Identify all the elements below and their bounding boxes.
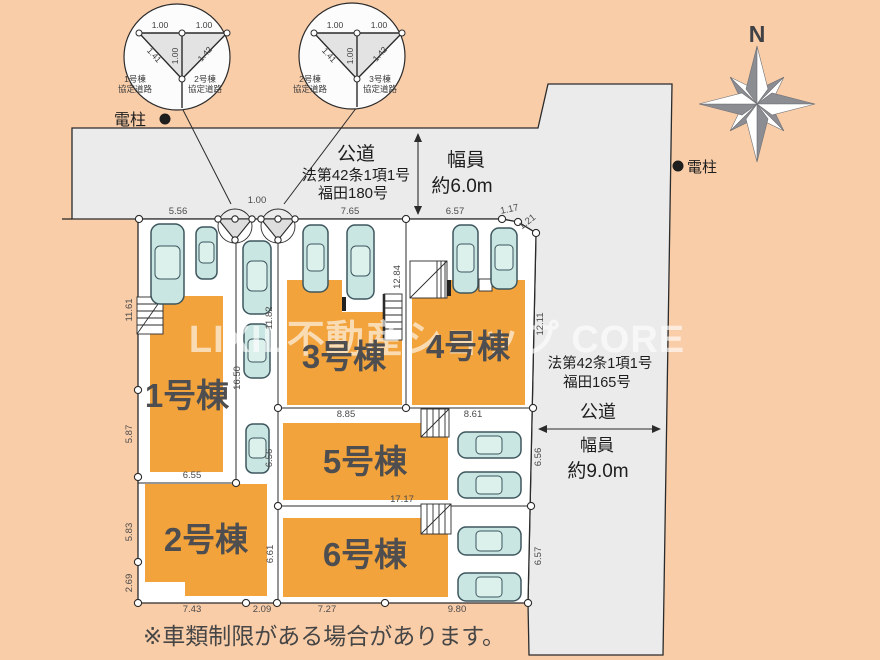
detail2-dim-center: 1.00 xyxy=(345,47,355,64)
right-road-route: 福田165号 xyxy=(563,374,631,391)
detail2-dim-top-left: 1.00 xyxy=(327,20,344,30)
dim-label: 12.84 xyxy=(392,265,403,289)
entry-mark-building3 xyxy=(342,297,346,311)
detail2-label-left-1: 2号棟 xyxy=(299,74,321,84)
dim-label: 11.61 xyxy=(124,298,135,321)
dim-label: 5.83 xyxy=(124,523,135,542)
right-road-name: 公道 xyxy=(580,402,616,422)
detail1-dim-center: 1.00 xyxy=(170,47,180,64)
top-road-law: 法第42条1項1号 xyxy=(302,166,410,184)
utility-pole-dot-left xyxy=(160,114,171,125)
dim-label: 8.61 xyxy=(464,409,483,420)
building-3-label: 3号棟 xyxy=(302,338,387,375)
stairs-parcel6 xyxy=(421,504,451,534)
dim-label: 12.11 xyxy=(535,312,546,335)
utility-pole-label-left: 電柱 xyxy=(114,111,146,129)
building-4-label: 4号棟 xyxy=(426,328,511,365)
dim-label: 6.57 xyxy=(533,547,544,566)
detail1-dim-top-left: 1.00 xyxy=(152,20,169,30)
dim-label: 6.55 xyxy=(183,470,202,481)
dim-label: 17.17 xyxy=(390,494,414,505)
dim-label: 1.00 xyxy=(248,195,267,206)
detail1-label-right-1: 2号棟 xyxy=(194,74,216,84)
building-6-label: 6号棟 xyxy=(323,536,408,573)
footnote: ※車類制限がある場合があります。 xyxy=(143,623,505,649)
stairs-parcel5 xyxy=(421,409,449,437)
dim-label: 6.56 xyxy=(533,448,544,467)
dim-label: 2.09 xyxy=(253,604,272,615)
site-plan-canvas: 1.00 1.00 1.41 1.00 1.42 1号棟 協定道路 2号棟 協定… xyxy=(0,0,880,660)
dim-label: 6.61 xyxy=(265,545,276,564)
right-road-width-value: 約9.0m xyxy=(567,460,628,482)
right-road-law: 法第42条1項1号 xyxy=(548,354,653,372)
dim-label: 7.27 xyxy=(318,604,337,615)
dim-label: 9.80 xyxy=(448,604,467,615)
detail1-label-left-2: 協定道路 xyxy=(118,84,153,94)
compass-north-label: N xyxy=(749,21,766,47)
dim-label: 5.56 xyxy=(169,206,188,217)
dim-label: 7.65 xyxy=(341,206,360,217)
top-road-width-label: 幅員 xyxy=(447,149,485,171)
dim-label: 8.85 xyxy=(337,409,356,420)
building-1-label: 1号棟 xyxy=(145,377,230,414)
dim-label: 6.57 xyxy=(446,206,465,217)
right-road-width-label: 幅員 xyxy=(580,436,614,455)
dim-label: 11.82 xyxy=(264,306,275,329)
detail2-label-right-1: 3号棟 xyxy=(369,74,391,84)
top-road-name: 公道 xyxy=(337,143,375,165)
entry-mark-building4 xyxy=(447,280,451,296)
top-road-width-value: 約6.0m xyxy=(431,175,492,197)
detail2-label-right-2: 協定道路 xyxy=(363,84,398,94)
top-road-route: 福田180号 xyxy=(318,185,388,202)
detail2-label-left-2: 協定道路 xyxy=(293,84,328,94)
utility-pole-label-right: 電柱 xyxy=(687,159,717,176)
building-5-label: 5号棟 xyxy=(323,443,408,480)
dim-label: 2.69 xyxy=(124,574,135,593)
site-plan: 1.00 1.00 1.41 1.00 1.42 1号棟 協定道路 2号棟 協定… xyxy=(0,0,880,660)
detail1-dim-top-right: 1.00 xyxy=(196,20,213,30)
dim-label: 6.56 xyxy=(264,449,275,468)
building-2-label: 2号棟 xyxy=(164,521,249,558)
dim-label: 5.87 xyxy=(124,425,135,444)
detail1-label-right-2: 協定道路 xyxy=(188,84,223,94)
notch-parcel4 xyxy=(479,279,492,291)
dim-label: 7.43 xyxy=(183,604,202,615)
dim-label: 16.50 xyxy=(232,366,243,390)
detail2-dim-top-right: 1.00 xyxy=(371,20,388,30)
approach-parcel4 xyxy=(410,261,447,298)
detail1-label-left-1: 1号棟 xyxy=(124,74,146,84)
utility-pole-dot-right xyxy=(673,161,684,172)
